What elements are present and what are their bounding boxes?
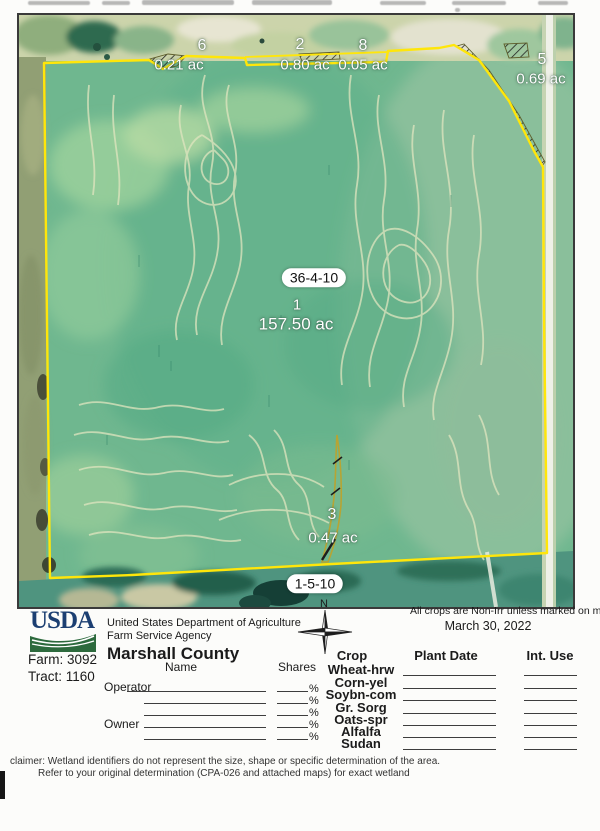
int-use-header: Int. Use [527,649,574,663]
section-label-1-5-10: 1-5-10 [287,574,343,593]
field-3-acres: 0.47 ac [308,531,357,546]
field-1-number: 1 [293,298,301,313]
plant-date-line [403,737,496,738]
field-6-acres: 0.21 ac [154,58,203,73]
field-8-acres: 0.05 ac [338,58,387,73]
crop-name: Sudan [341,737,381,751]
name-header: Name [165,661,197,674]
shares-line [277,727,308,728]
shares-line [277,715,308,716]
plant-date-line [403,713,496,714]
operator-name-line [127,691,266,692]
field-2-number: 2 [296,37,305,53]
tract-number: Tract: 1160 [28,670,95,685]
scan-artifact [538,1,568,5]
scan-edge-artifact [0,771,5,799]
scan-artifact [252,0,332,5]
plant-date-line [403,749,496,750]
name-line [144,739,266,740]
owner-name-line [144,727,266,728]
scan-artifact [142,0,234,5]
int-use-line [524,713,577,714]
aerial-photo-map: 6 0.21 ac 2 0.80 ac 8 0.05 ac 5 0.69 ac … [17,13,575,609]
name-line [144,715,266,716]
int-use-line [524,688,577,689]
agency-line-1: United States Department of Agriculture [107,617,301,629]
disclaimer-line-2: Refer to your original determination (CP… [38,768,410,779]
section-label-36-4-10: 36-4-10 [282,268,346,287]
non-irrigated-note: All crops are Non-Irr unless marked on m… [410,606,600,618]
farm-number: Farm: 3092 [28,653,97,668]
int-use-line [524,675,577,676]
usda-logo-swoosh-icon [30,629,96,652]
scan-artifact [455,8,460,12]
percent-sign: % [309,719,319,731]
field-1-acres: 157.50 ac [259,316,334,333]
disclaimer-line-1: claimer: Wetland identifiers do not repr… [10,756,440,767]
plant-date-header: Plant Date [414,649,478,663]
field-6-number: 6 [198,38,207,54]
int-use-line [524,725,577,726]
plant-date-line [403,675,496,676]
scan-artifact [28,1,90,5]
shares-header: Shares [278,661,316,674]
scan-artifact [380,1,426,5]
shares-line [277,703,308,704]
agency-line-2: Farm Service Agency [107,630,212,642]
percent-sign: % [309,683,319,695]
scan-artifact [452,1,506,5]
plant-date-line [403,688,496,689]
int-use-line [524,749,577,750]
field-5-acres: 0.69 ac [516,72,565,87]
shares-line [277,739,308,740]
percent-sign: % [309,695,319,707]
int-use-line [524,737,577,738]
plant-date-line [403,725,496,726]
field-5-number: 5 [538,52,547,68]
map-date: March 30, 2022 [445,620,532,634]
operator-label: Operator [104,681,151,694]
percent-sign: % [309,707,319,719]
owner-label: Owner [104,718,139,731]
field-2-acres: 0.80 ac [280,58,329,73]
scan-artifact [102,1,130,5]
name-line [144,703,266,704]
field-8-number: 8 [359,38,368,54]
percent-sign: % [309,731,319,743]
int-use-line [524,700,577,701]
shares-line [277,691,308,692]
field-3-number: 3 [328,507,337,523]
plant-date-line [403,700,496,701]
